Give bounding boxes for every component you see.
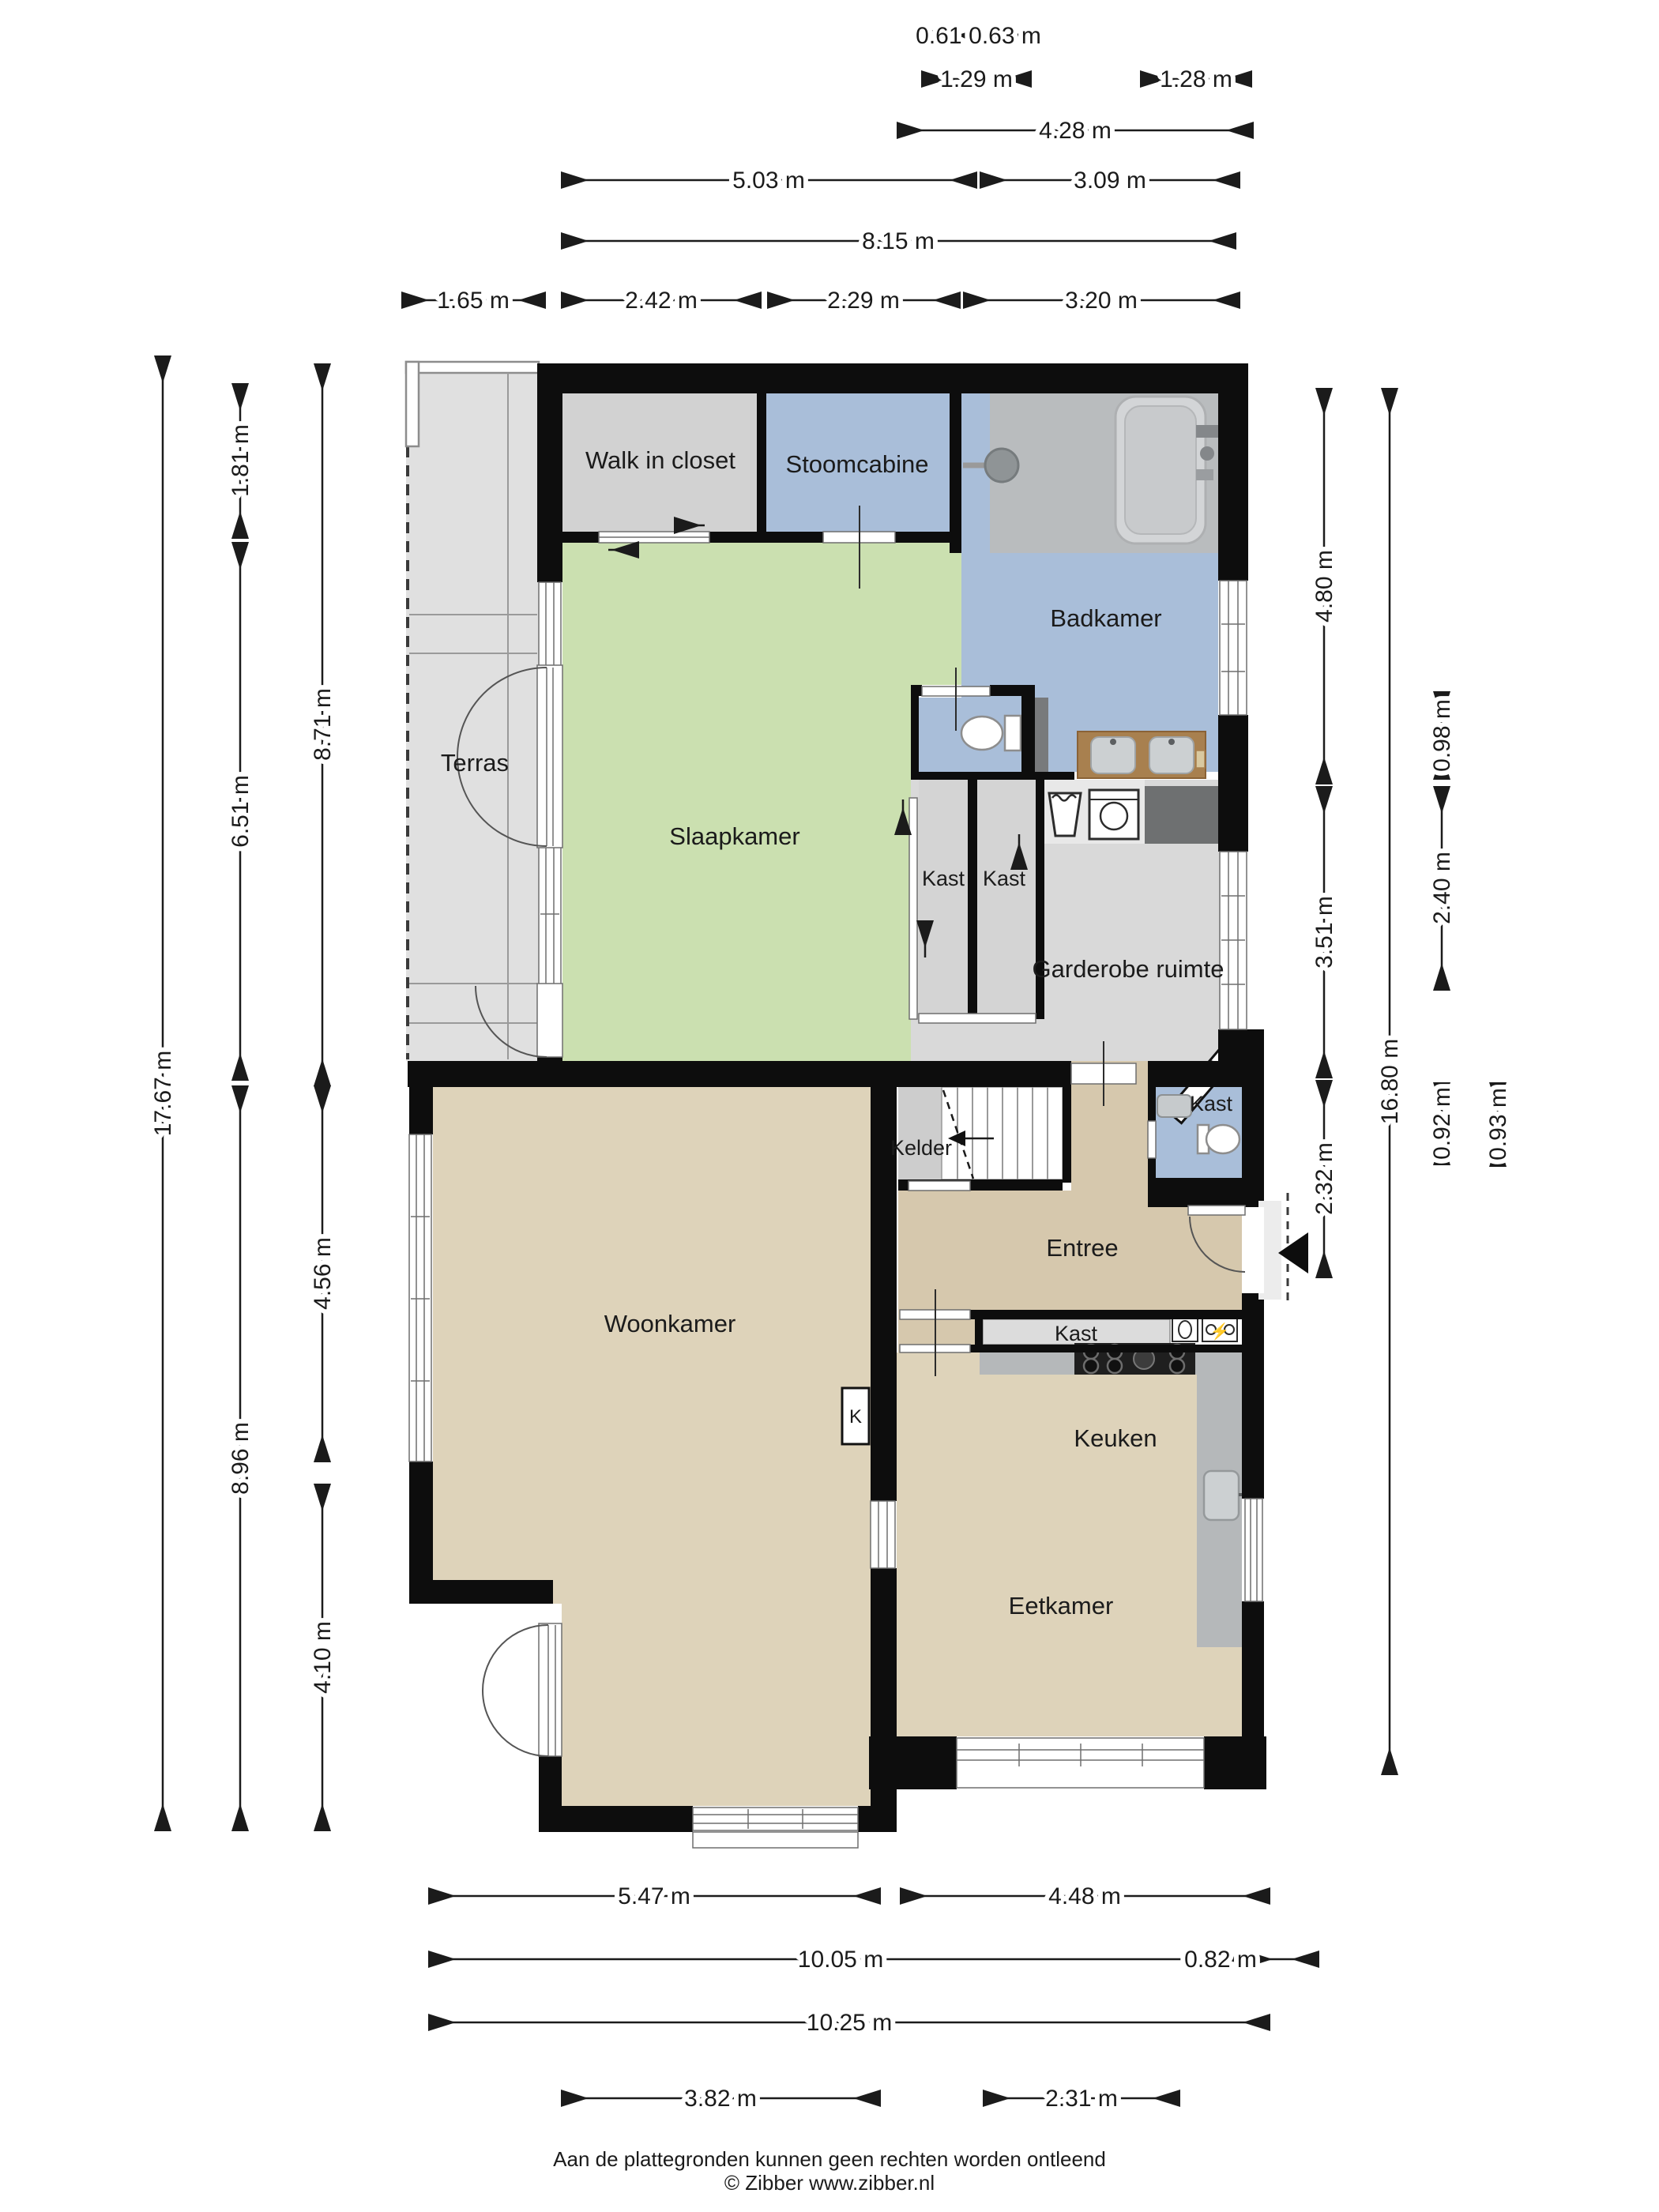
dim-2-40: 2.40 m: [1429, 852, 1455, 924]
dim-2-31: 2.31 m: [1045, 2086, 1118, 2112]
washing-machine-icon: [1089, 790, 1138, 839]
wall-kastband-left: [975, 1310, 983, 1352]
terras-railing-top: [406, 362, 539, 373]
garderobe-kasten: [903, 780, 1044, 1023]
toilet-tank: [1005, 716, 1021, 750]
label-keuken: Keuken: [1074, 1424, 1157, 1452]
dim-17-67: 17.67 m: [150, 1051, 176, 1136]
wall-right-lower-b: [1242, 1293, 1264, 1499]
floorplan-canvas: ⚡: [0, 0, 1659, 2212]
front-door-leaf: [1188, 1206, 1245, 1215]
dim-0-98: 0.98 m: [1429, 699, 1455, 772]
door-terras-single: [537, 984, 562, 1057]
dim-3-51: 3.51 m: [1311, 896, 1337, 969]
hall-closet-band: ⚡: [983, 1318, 1237, 1345]
bathtub-tap: [1200, 446, 1214, 461]
dim-1-29: 1.29 m: [940, 66, 1013, 92]
label-entree: Entree: [1046, 1234, 1118, 1262]
bathtub-handle: [1196, 469, 1213, 480]
label-kast-k: K: [849, 1406, 862, 1428]
kast-right-wall: [1036, 780, 1044, 1019]
wall-bottom-eet-a: [869, 1736, 957, 1789]
wall-mid2: [871, 1061, 1063, 1087]
front-door-opening: [1242, 1207, 1264, 1293]
dim-2-29: 2.29 m: [827, 288, 900, 314]
door-terras-double: [537, 665, 562, 848]
keuken-eetkamer-floor: [897, 1352, 1242, 1736]
sink-tap: [1110, 739, 1116, 745]
label-stoomcabine: Stoomcabine: [786, 450, 929, 478]
window-woonkamer-bottom: [693, 1808, 858, 1830]
wall-garderobe-top: [911, 772, 1074, 780]
toilet-icon: [961, 717, 1003, 750]
wall-porch-stub: [409, 1580, 553, 1604]
wall-right-mid: [1218, 715, 1248, 852]
window-woonkamer-left: [409, 1134, 431, 1461]
dim-0-63: 0.63 m: [969, 23, 1041, 49]
badkamer-wc: [919, 698, 1021, 772]
wall-wc2-bottom: [1148, 1178, 1242, 1207]
dimensions-bottom: 5.47 m 4.48 m 10.05 m 0.82 m 10.25 m 3.8…: [432, 1883, 1315, 2112]
wall-top: [537, 363, 1248, 393]
label-woonkamer: Woonkamer: [604, 1310, 736, 1337]
vanity-accessory: [1196, 750, 1205, 768]
wall-left-lower-a: [409, 1061, 433, 1134]
dim-1-28: 1.28 m: [1160, 66, 1232, 92]
wall-closet-bottom: [895, 532, 961, 543]
dimensions-right: 4.80 m 3.51 m 2.32 m 16.80 m 0.98 m 2.40…: [1311, 392, 1511, 1771]
label-badkamer: Badkamer: [1050, 604, 1161, 632]
wall-wc2-left-a: [1148, 1061, 1156, 1121]
wall-right-upper: [1218, 363, 1248, 581]
label-kast-1: Kast: [922, 867, 965, 890]
label-garderobe: Garderobe ruimte: [1033, 955, 1224, 983]
dim-5-47: 5.47 m: [618, 1883, 690, 1909]
dim-4-56: 4.56 m: [310, 1237, 336, 1310]
kelder-floor: [898, 1087, 942, 1179]
dim-10-05: 10.05 m: [798, 1947, 883, 1973]
window-keuken: [1245, 1499, 1262, 1601]
dimensions-top: 0.61 m 0.63 m 1.29 m 1.28 m 4.28 m 5.03 …: [405, 23, 1250, 314]
dim-3-09: 3.09 m: [1074, 167, 1146, 194]
wall-kastband-top: [970, 1310, 1242, 1319]
woonkamer-floor: [433, 1087, 871, 1806]
door-kelder: [908, 1181, 970, 1191]
sink-tap: [1168, 739, 1175, 745]
dim-4-48: 4.48 m: [1048, 1883, 1121, 1909]
entrance-arrow-icon: [1278, 1232, 1308, 1273]
wall-stoom-bad: [950, 393, 961, 553]
sink-icon: [1157, 1095, 1191, 1117]
wall-bottom-woon-a: [539, 1806, 693, 1832]
slaapkamer-floor: [562, 543, 911, 1061]
terras-floor: [406, 363, 539, 1061]
wall-wc-right: [1021, 685, 1035, 772]
wall-wc-left: [911, 685, 919, 780]
dim-10-25: 10.25 m: [807, 2010, 892, 2036]
kitchen-sink-icon: [1204, 1471, 1239, 1520]
laundry-counter: [1145, 786, 1218, 844]
dim-2-32: 2.32 m: [1311, 1142, 1337, 1215]
label-kast-2: Kast: [983, 867, 1026, 890]
wall-kastband-bottom: [970, 1345, 1242, 1352]
kast-sliding-door: [909, 798, 917, 1019]
dim-5-03: 5.03 m: [732, 167, 805, 194]
dim-0-82: 0.82 m: [1184, 1947, 1257, 1973]
wall-right-lower-a: [1242, 1087, 1264, 1207]
door-porch-double: [539, 1623, 562, 1756]
dim-3-20: 3.20 m: [1065, 288, 1138, 314]
window-badkamer: [1220, 581, 1247, 715]
dim-16-80: 16.80 m: [1377, 1039, 1403, 1124]
wall-mid3: [1148, 1061, 1264, 1087]
meter-bolt: ⚡: [1210, 1322, 1230, 1341]
label-walk-in-closet: Walk in closet: [585, 446, 735, 474]
dim-1-81: 1.81 m: [228, 424, 254, 497]
toilet-icon: [1206, 1125, 1240, 1153]
dim-0-93: 0.93 m: [1485, 1088, 1511, 1161]
wall-closet-stoom: [757, 393, 766, 532]
label-kelder: Kelder: [890, 1136, 952, 1160]
wall-stairs-corridor: [1063, 1061, 1071, 1183]
label-kast-hal: Kast: [1055, 1322, 1098, 1345]
dim-6-51: 6.51 m: [228, 775, 254, 848]
dim-4-10: 4.10 m: [310, 1621, 336, 1694]
floorplan-page: ⚡: [0, 0, 1659, 2212]
dim-8-96: 8.96 m: [228, 1422, 254, 1495]
bathtub-inner: [1125, 406, 1196, 534]
wall-closet-bottom: [709, 532, 823, 543]
label-eetkamer: Eetkamer: [1009, 1592, 1114, 1619]
terras-area: [406, 362, 539, 1061]
door-wc-lower: [1148, 1121, 1156, 1158]
dim-8-71: 8.71 m: [310, 688, 336, 761]
window-exterior-sill: [693, 1832, 858, 1848]
footer-disclaimer: Aan de plattegronden kunnen geen rechten…: [553, 2147, 1106, 2171]
kast-divider-wall: [968, 780, 977, 1019]
label-slaapkamer: Slaapkamer: [669, 822, 799, 850]
label-kast-diagonaal: Kast: [1190, 1092, 1233, 1115]
wall-closet-bottom: [562, 532, 599, 543]
dim-3-82: 3.82 m: [684, 2086, 757, 2112]
dim-8-15: 8.15 m: [862, 228, 935, 254]
dim-2-42: 2.42 m: [625, 288, 698, 314]
dim-0-92: 0.92 m: [1429, 1087, 1455, 1160]
dim-4-28: 4.28 m: [1039, 118, 1112, 144]
dim-1-65: 1.65 m: [437, 288, 510, 314]
wall-bottom-woon-b: [858, 1806, 897, 1832]
wall-bottom-eet-b: [1204, 1736, 1266, 1789]
label-terras: Terras: [441, 749, 509, 777]
kast-1-floor: [919, 780, 968, 1019]
kast-2-floor: [977, 780, 1036, 1019]
footer-copyright: © Zibber www.zibber.nl: [724, 2171, 935, 2195]
duct-panel: [1035, 698, 1048, 772]
wall-wc2-left-b: [1148, 1158, 1156, 1178]
shower-icon: [985, 449, 1018, 482]
dim-4-80: 4.80 m: [1311, 550, 1337, 623]
kelder-stairs: [942, 1087, 1063, 1179]
laundry-area: [1044, 780, 1218, 844]
dimensions-left: 17.67 m 1.81 m 6.51 m 8.96 m 8.71 m 4.56…: [150, 359, 336, 1827]
bathtub-faucet: [1196, 425, 1218, 438]
terras-railing-left: [406, 362, 419, 446]
interior-window: [871, 1501, 895, 1568]
kast-sill: [919, 1014, 1036, 1023]
wall-left-upper: [537, 393, 562, 582]
wall-mid: [408, 1061, 871, 1087]
